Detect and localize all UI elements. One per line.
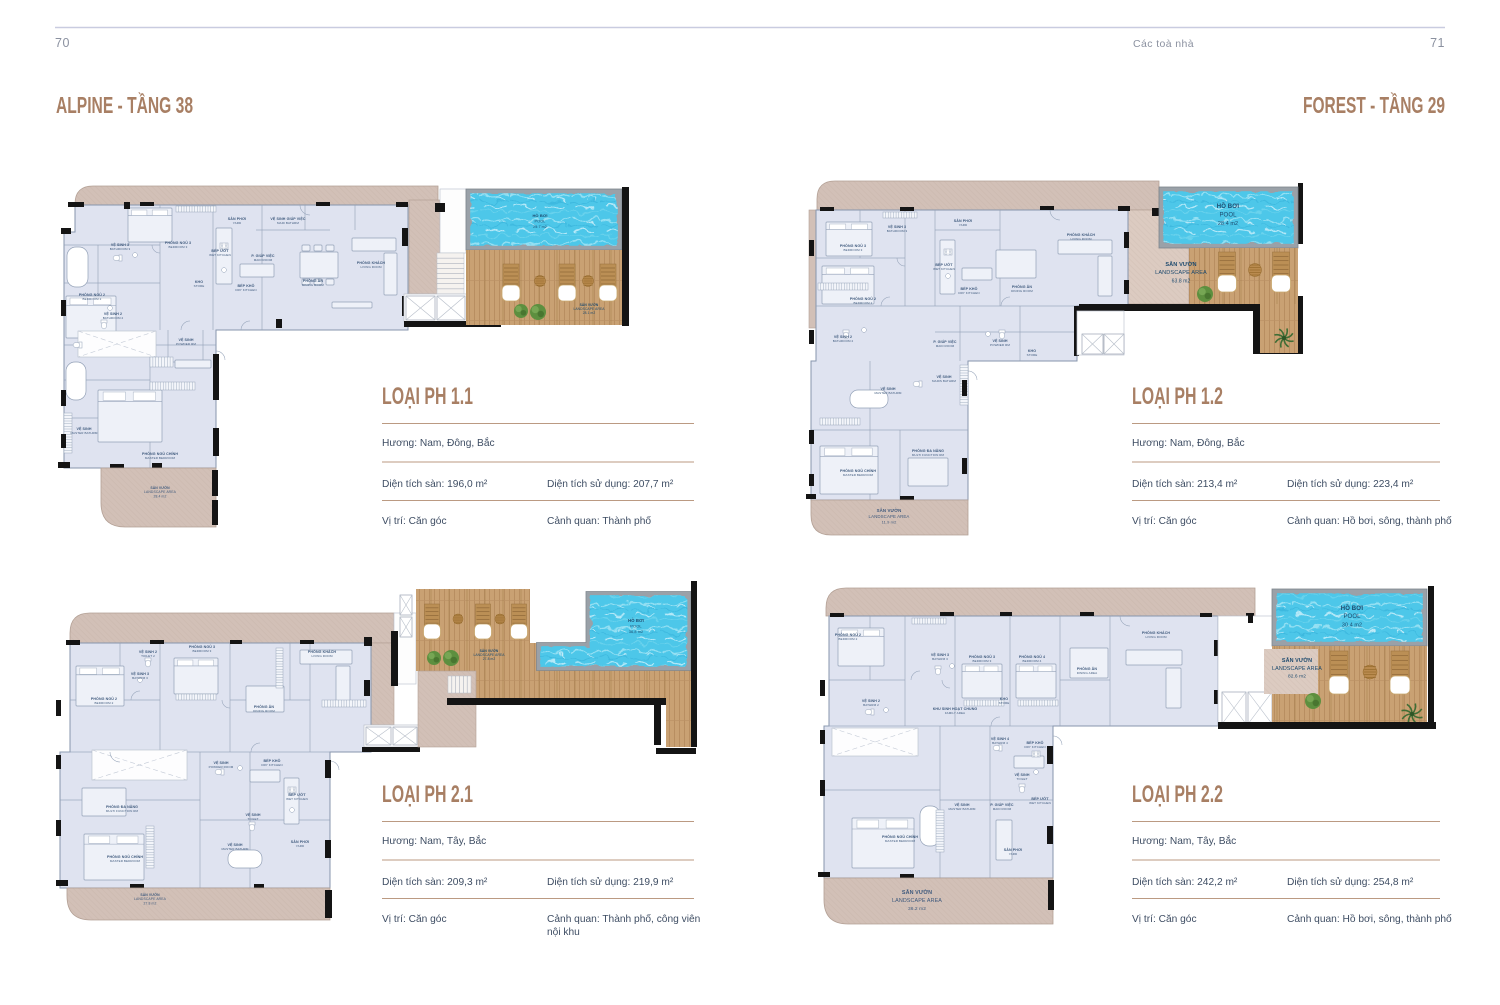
- svg-text:Diện tích sàn: 196,0 m²: Diện tích sàn: 196,0 m²: [382, 479, 488, 490]
- svg-text:STORE: STORE: [1027, 353, 1038, 357]
- svg-text:LANDSCAPE AREA: LANDSCAPE AREA: [892, 898, 942, 904]
- svg-text:Hương: Nam, Tây, Bắc: Hương: Nam, Tây, Bắc: [1132, 834, 1236, 847]
- svg-text:LANDSCAPE AREA: LANDSCAPE AREA: [869, 514, 910, 519]
- svg-text:28.4 m2: 28.4 m2: [1218, 221, 1238, 227]
- svg-text:SÂN VƯỜN: SÂN VƯỜN: [1165, 260, 1196, 268]
- svg-text:63.8 m2: 63.8 m2: [1172, 278, 1191, 284]
- svg-text:WET KITCHEN: WET KITCHEN: [209, 253, 231, 257]
- svg-text:Hương: Nam, Tây, Bắc: Hương: Nam, Tây, Bắc: [382, 834, 486, 847]
- svg-text:Vị trí: Căn góc: Vị trí: Căn góc: [382, 914, 447, 925]
- svg-text:Vị trí: Căn góc: Vị trí: Căn góc: [382, 516, 447, 527]
- svg-text:YARD: YARD: [233, 221, 242, 225]
- svg-text:BEDROOM 3: BEDROOM 3: [973, 659, 992, 663]
- svg-text:LANDSCAPE AREA: LANDSCAPE AREA: [1272, 666, 1322, 672]
- svg-text:BATHRM 3: BATHRM 3: [132, 676, 148, 680]
- svg-text:WET KITCHEN: WET KITCHEN: [286, 797, 308, 801]
- svg-text:28.4 m2: 28.4 m2: [154, 494, 167, 498]
- svg-text:Diện tích sàn: 213,4 m²: Diện tích sàn: 213,4 m²: [1132, 479, 1238, 490]
- svg-text:BATHROOM 2: BATHROOM 2: [833, 339, 854, 343]
- svg-text:LANDSCAPE AREA: LANDSCAPE AREA: [1155, 270, 1207, 276]
- svg-text:YARD: YARD: [296, 844, 305, 848]
- svg-text:DINING ROOM: DINING ROOM: [253, 709, 275, 713]
- svg-text:Cảnh quan: Thành phố: Cảnh quan: Thành phố: [547, 515, 651, 527]
- svg-text:MASTER BATHRM: MASTER BATHRM: [70, 431, 97, 435]
- svg-text:YARD: YARD: [1009, 852, 1018, 856]
- svg-text:DINING AREA: DINING AREA: [1077, 671, 1097, 675]
- svg-text:BEDROOM 2: BEDROOM 2: [854, 301, 873, 305]
- svg-text:YARD: YARD: [959, 223, 968, 227]
- svg-text:LIVING ROOM: LIVING ROOM: [360, 265, 382, 269]
- svg-text:SÂN VƯỜN: SÂN VƯỜN: [877, 508, 902, 513]
- svg-text:LOẠI PH 2.2: LOẠI PH 2.2: [1132, 781, 1223, 808]
- svg-text:TOILET 2: TOILET 2: [141, 654, 155, 658]
- svg-text:BEDROOM 3: BEDROOM 3: [844, 248, 863, 252]
- svg-text:Cảnh quan: Hồ bơi, sông, thành: Cảnh quan: Hồ bơi, sông, thành phố: [1287, 515, 1452, 527]
- svg-text:POWDER RM: POWDER RM: [176, 342, 196, 346]
- svg-text:MAID ROOM: MAID ROOM: [254, 258, 273, 262]
- svg-text:FAMILY AREA: FAMILY AREA: [945, 711, 965, 715]
- svg-text:Hương: Nam, Đông, Bắc: Hương: Nam, Đông, Bắc: [382, 436, 495, 449]
- svg-text:WET KITCHEN: WET KITCHEN: [933, 267, 955, 271]
- svg-text:FOREST - TẦNG 29: FOREST - TẦNG 29: [1303, 91, 1445, 118]
- svg-text:MASTER BEDROOM: MASTER BEDROOM: [885, 839, 916, 843]
- svg-text:ALPINE - TẦNG 38: ALPINE - TẦNG 38: [56, 91, 193, 118]
- svg-text:BEDROOM 2: BEDROOM 2: [83, 297, 102, 301]
- svg-text:BEDROOM 3: BEDROOM 3: [169, 245, 188, 249]
- svg-text:Cảnh quan: Thành phố, công viê: Cảnh quan: Thành phố, công viên: [547, 913, 700, 925]
- svg-text:DINING ROOM: DINING ROOM: [1011, 289, 1033, 293]
- svg-text:BEDROOM 2: BEDROOM 2: [839, 637, 858, 641]
- svg-text:HỒ BƠI: HỒ BƠI: [628, 618, 644, 623]
- svg-text:BEDROOM 3: BEDROOM 3: [193, 649, 212, 653]
- svg-text:MASTER BEDROOM: MASTER BEDROOM: [843, 473, 874, 477]
- svg-text:MASTER BATHRM: MASTER BATHRM: [948, 807, 975, 811]
- svg-text:STORE: STORE: [194, 284, 205, 288]
- svg-text:TOILET: TOILET: [247, 817, 258, 821]
- svg-text:BATHROOM 3: BATHROOM 3: [887, 229, 908, 233]
- svg-text:Diện tích sàn: 242,2 m²: Diện tích sàn: 242,2 m²: [1132, 877, 1238, 888]
- svg-text:BATHRM 2: BATHRM 2: [863, 703, 879, 707]
- svg-text:LOẠI PH 1.2: LOẠI PH 1.2: [1132, 383, 1223, 410]
- svg-text:DRY KITCHEN: DRY KITCHEN: [235, 288, 256, 292]
- svg-text:30.4 m2: 30.4 m2: [1342, 622, 1362, 628]
- svg-text:25.7 m2: 25.7 m2: [533, 225, 547, 229]
- svg-text:LIVING ROOM: LIVING ROOM: [311, 654, 333, 658]
- svg-text:BATHRM 4: BATHRM 4: [992, 741, 1008, 745]
- svg-text:HỒ BƠI: HỒ BƠI: [1341, 605, 1364, 612]
- svg-text:TOILET: TOILET: [1016, 777, 1027, 781]
- svg-text:POOL: POOL: [535, 219, 546, 223]
- svg-text:SÂN VƯỜN: SÂN VƯỜN: [902, 888, 932, 896]
- svg-text:27.8 m2: 27.8 m2: [144, 901, 157, 905]
- svg-text:DINING ROOM: DINING ROOM: [302, 283, 324, 287]
- svg-text:BATHRM 3: BATHRM 3: [932, 657, 948, 661]
- svg-text:POOL: POOL: [1343, 614, 1361, 620]
- svg-text:71: 71: [1430, 36, 1445, 50]
- svg-text:POWDER ROOM: POWDER ROOM: [209, 765, 234, 769]
- svg-text:POOL: POOL: [630, 624, 642, 629]
- svg-text:MULTI FUNCTION RM: MULTI FUNCTION RM: [912, 453, 945, 457]
- svg-text:MULTI FUNCTION RM: MULTI FUNCTION RM: [106, 809, 139, 813]
- svg-text:LIVING ROOM: LIVING ROOM: [1070, 237, 1092, 241]
- svg-text:HỒ BƠI: HỒ BƠI: [532, 213, 547, 218]
- svg-text:MAID ROOM: MAID ROOM: [936, 344, 955, 348]
- svg-text:Diện tích sử dụng: 207,7 m²: Diện tích sử dụng: 207,7 m²: [547, 478, 674, 490]
- svg-text:Hương: Nam, Đông, Bắc: Hương: Nam, Đông, Bắc: [1132, 436, 1245, 449]
- svg-text:28.1 m2: 28.1 m2: [583, 311, 596, 315]
- svg-text:Diện tích sử dụng: 254,8 m²: Diện tích sử dụng: 254,8 m²: [1287, 876, 1414, 888]
- svg-text:70: 70: [55, 36, 70, 50]
- svg-text:WET KITCHEN: WET KITCHEN: [1029, 801, 1051, 805]
- svg-text:STORE: STORE: [999, 701, 1010, 705]
- svg-text:27.8 m2: 27.8 m2: [483, 657, 496, 661]
- svg-text:POWDER RM: POWDER RM: [990, 343, 1010, 347]
- svg-text:Cảnh quan: Hồ bơi, sông, thành: Cảnh quan: Hồ bơi, sông, thành phố: [1287, 913, 1452, 925]
- svg-text:BEDROOM 2: BEDROOM 2: [95, 701, 114, 705]
- svg-text:DRY KITCHEN: DRY KITCHEN: [261, 763, 282, 767]
- svg-text:MAIDS BATHRM: MAIDS BATHRM: [932, 379, 956, 383]
- svg-text:POOL: POOL: [1219, 212, 1237, 218]
- svg-text:36.8 m2: 36.8 m2: [629, 630, 643, 634]
- svg-text:11.9 m2: 11.9 m2: [882, 520, 898, 525]
- svg-text:Vị trí: Căn góc: Vị trí: Căn góc: [1132, 516, 1197, 527]
- svg-text:MASTER BATHRM: MASTER BATHRM: [221, 847, 248, 851]
- svg-text:MAID BATHRM: MAID BATHRM: [277, 221, 299, 225]
- svg-text:LOẠI PH 2.1: LOẠI PH 2.1: [382, 781, 473, 808]
- svg-text:MASTER BATHRM: MASTER BATHRM: [874, 391, 901, 395]
- svg-text:LIVING ROOM: LIVING ROOM: [1145, 635, 1167, 639]
- svg-text:MASTER BEDROOM: MASTER BEDROOM: [145, 456, 176, 460]
- svg-text:Diện tích sử dụng: 219,9 m²: Diện tích sử dụng: 219,9 m²: [547, 876, 674, 888]
- svg-text:Diện tích sử dụng: 223,4 m²: Diện tích sử dụng: 223,4 m²: [1287, 478, 1414, 490]
- svg-text:BATHROOM 3: BATHROOM 3: [110, 247, 131, 251]
- svg-text:BEDROOM 4: BEDROOM 4: [1023, 659, 1042, 663]
- svg-text:Các toà nhà: Các toà nhà: [1133, 38, 1194, 50]
- svg-text:Vị trí: Căn góc: Vị trí: Căn góc: [1132, 914, 1197, 925]
- svg-text:DRY KITCHEN: DRY KITCHEN: [958, 291, 979, 295]
- svg-text:SÂN VƯỜN: SÂN VƯỜN: [1282, 656, 1312, 664]
- svg-text:82.6 m2: 82.6 m2: [1288, 674, 1306, 680]
- svg-text:Diện tích sàn: 209,3 m²: Diện tích sàn: 209,3 m²: [382, 877, 488, 888]
- svg-text:LOẠI PH 1.1: LOẠI PH 1.1: [382, 383, 473, 410]
- svg-text:36.2 m2: 36.2 m2: [908, 906, 926, 912]
- svg-text:MASTER BEDROOM: MASTER BEDROOM: [110, 859, 141, 863]
- svg-text:nội khu: nội khu: [547, 927, 580, 938]
- svg-text:MAID ROOM: MAID ROOM: [993, 807, 1012, 811]
- svg-text:HỒ BƠI: HỒ BƠI: [1217, 203, 1240, 210]
- svg-text:BATHROOM 2: BATHROOM 2: [103, 316, 124, 320]
- svg-text:DRY KITCHEN: DRY KITCHEN: [1024, 745, 1045, 749]
